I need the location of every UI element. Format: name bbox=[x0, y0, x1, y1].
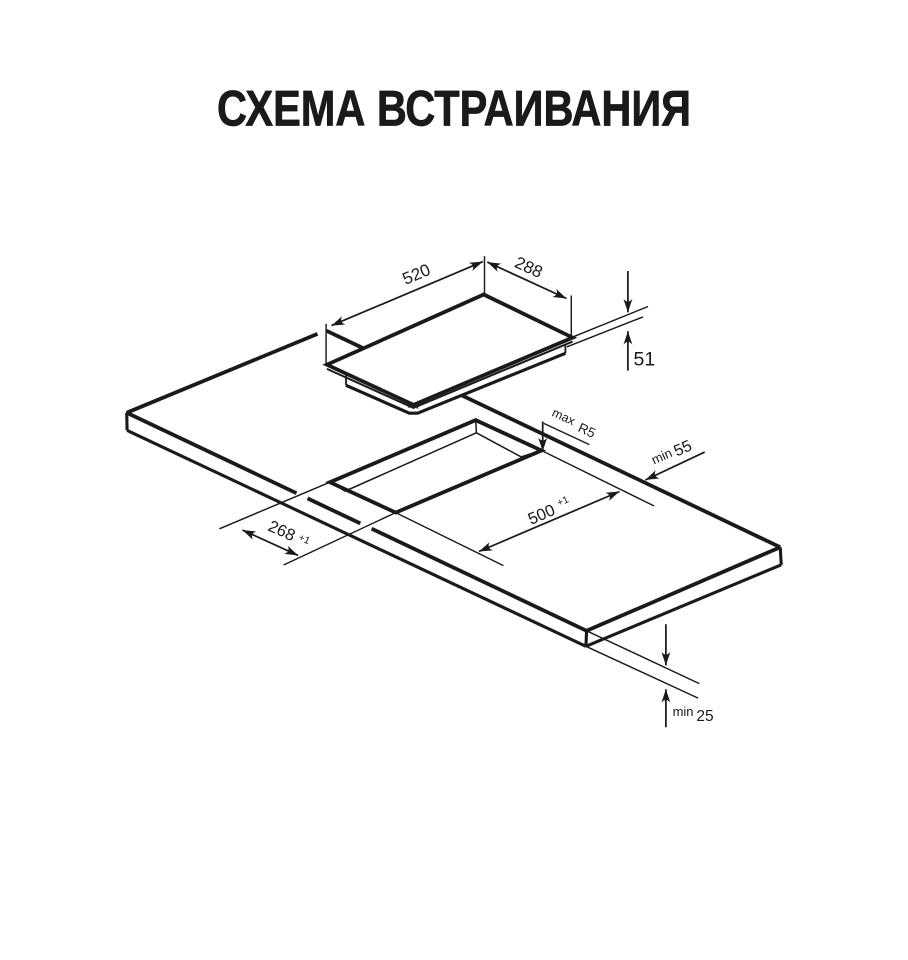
svg-text:288: 288 bbox=[512, 253, 546, 282]
svg-text:51: 51 bbox=[634, 349, 656, 371]
svg-text:min: min bbox=[649, 445, 674, 467]
svg-text:min: min bbox=[673, 704, 694, 719]
svg-text:+1: +1 bbox=[556, 494, 571, 509]
svg-text:R5: R5 bbox=[576, 420, 598, 441]
svg-text:СХЕМА ВСТРАИВАНИЯ: СХЕМА ВСТРАИВАНИЯ bbox=[217, 80, 691, 137]
svg-text:25: 25 bbox=[696, 708, 713, 725]
svg-text:+1: +1 bbox=[297, 532, 312, 547]
svg-text:500: 500 bbox=[525, 501, 557, 528]
svg-text:55: 55 bbox=[671, 437, 694, 460]
svg-text:268: 268 bbox=[265, 517, 298, 545]
svg-text:max: max bbox=[550, 406, 578, 429]
